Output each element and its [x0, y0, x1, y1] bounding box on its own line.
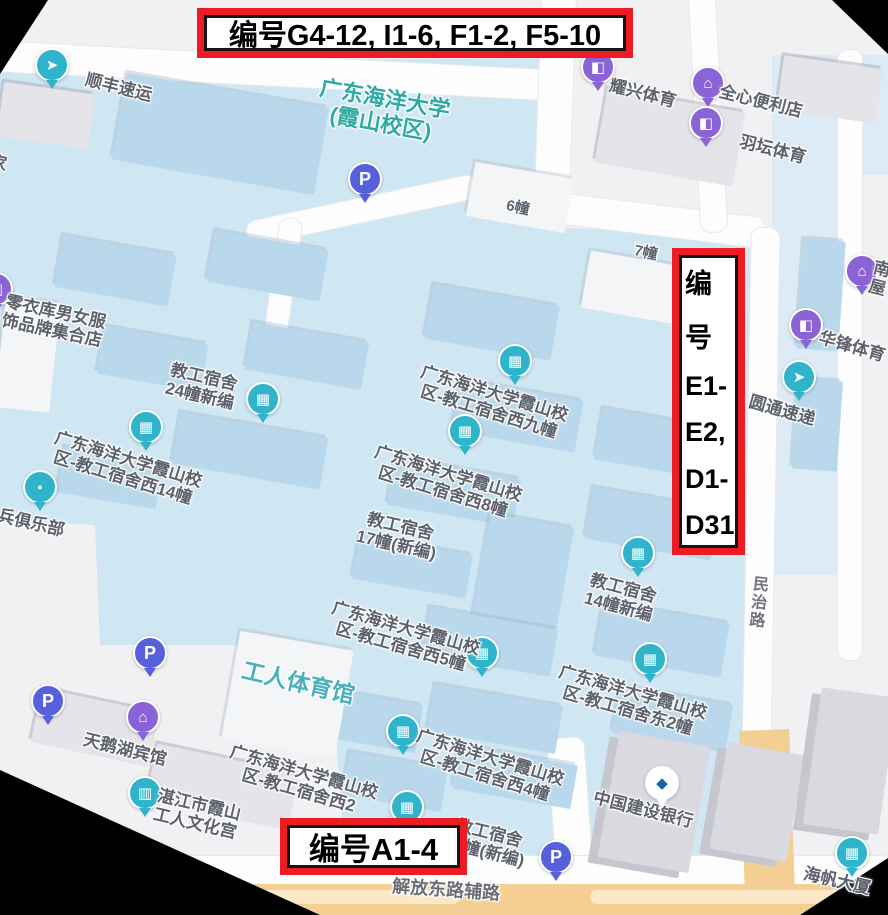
culture-glyph: ▥ [138, 784, 152, 802]
building-icon: ▦ [129, 410, 163, 444]
building-glyph: ▦ [631, 544, 645, 562]
annotation-right-text: 编号E1-E2,D1-D31 [679, 255, 738, 548]
label-building-6-line: 6幢 [505, 198, 531, 219]
label-dorm-17: 教工宿舍17幢(新编) [354, 508, 442, 563]
building-icon: ▦ [246, 382, 280, 416]
annotation-box-top: 编号G4-12, I1-6, F1-2, F5-10 [197, 8, 633, 58]
annotation-right-line: 号 [685, 316, 712, 355]
poi-dorm-24-building-pin[interactable]: ▦ [246, 382, 280, 423]
store-glyph: ⌂ [857, 263, 866, 280]
bag-icon: ◧ [789, 308, 823, 342]
label-minzhi-road-line: 路 [748, 612, 766, 631]
bank-glyph: ◆ [656, 774, 668, 792]
courier-icon: ➤ [35, 48, 69, 82]
parking-icon: P [31, 684, 65, 718]
pin-tail [144, 668, 156, 677]
bag-glyph: ◧ [699, 114, 713, 132]
label-minzhi-road: 民治路 [748, 576, 770, 631]
parking-glyph: P [144, 643, 156, 664]
pin-tail [793, 392, 805, 401]
building-glyph: ▦ [396, 722, 410, 740]
annotation-right-line: E2, [685, 417, 726, 448]
poi-dorm-west-9-building-pin[interactable]: ▦ [498, 344, 532, 385]
pin-tail [550, 872, 562, 881]
poi-dorm-east-2-building-pin[interactable]: ▦ [633, 642, 667, 683]
label-partial-left: 家 [0, 152, 9, 174]
pin-tail [46, 80, 58, 89]
poi-swan-lake-hotel-hotel-pin[interactable]: ⌂ [126, 700, 160, 741]
poi-dorm-west-14[interactable]: 广东海洋大学霞山校区-教工宿舍西14幢 [47, 428, 204, 509]
pin-tail [644, 674, 656, 683]
poi-huafeng-sports-line: 华锋体育 [817, 328, 888, 365]
courier-glyph: ➤ [793, 368, 806, 386]
building-icon: ▦ [621, 536, 655, 570]
poi-yutan-sports-bag-pin[interactable]: ◧ [689, 106, 723, 147]
poi-yaoxing-sports[interactable]: 耀兴体育 [607, 76, 678, 111]
pin-tail [700, 138, 712, 147]
pin-tail [139, 808, 151, 817]
parking-icon: P [348, 162, 382, 196]
poi-ccb-bank-line: 中国建设银行 [591, 788, 695, 831]
parking-pin-gym-parking-pin[interactable]: P [133, 636, 167, 677]
label-partial-left-line: 家 [0, 152, 9, 174]
poi-partial-right-line: 屋 [867, 276, 888, 299]
poi-dorm-east-2[interactable]: 广东海洋大学霞山校区-教工宿舍东2幢 [552, 662, 710, 741]
courier-glyph: ➤ [46, 56, 59, 74]
bag-glyph: ◧ [799, 316, 813, 334]
poi-dorm-west-8[interactable]: 广东海洋大学霞山校区-教工宿舍西8幢 [367, 442, 524, 523]
poi-sf-express-line: 顺丰速运 [83, 70, 154, 105]
pin-tail [459, 446, 471, 455]
pin-tail [632, 568, 644, 577]
building-icon: ▦ [633, 642, 667, 676]
building-icon: ▦ [498, 344, 532, 378]
pin-tail [359, 194, 371, 203]
poi-quanxin-store[interactable]: 全心便利店 [717, 82, 804, 121]
poi-yaoxing-sports-line: 耀兴体育 [607, 76, 678, 111]
poi-workers-gym-line: 工人体育馆 [239, 658, 357, 709]
pin-tail [592, 82, 604, 91]
pin-tail [137, 732, 149, 741]
building-glyph: ▦ [458, 422, 472, 440]
annotation-right-line: D1- [685, 464, 729, 495]
parking-glyph: P [550, 847, 562, 868]
parking-icon: P [539, 840, 573, 874]
campus-title[interactable]: 广东海洋大学(霞山校区) [313, 76, 452, 147]
building-glyph: ▦ [845, 844, 859, 862]
pin-tail [476, 668, 488, 677]
poi-dorm-14-new[interactable]: 教工宿舍14幢新编 [582, 570, 659, 625]
parking-pin-south-parking-pin[interactable]: P [539, 840, 573, 881]
hotel-glyph: ⌂ [138, 709, 147, 726]
parking-glyph: P [359, 169, 371, 190]
building-glyph: ▦ [139, 418, 153, 436]
building-glyph: ▦ [400, 798, 414, 816]
building-icon: ▦ [448, 414, 482, 448]
annotation-top-text: 编号G4-12, I1-6, F1-2, F5-10 [204, 15, 626, 51]
parking-pin-campus-parking-pin[interactable]: P [348, 162, 382, 203]
pin-tail [140, 442, 152, 451]
poi-yutan-sports-line: 羽坛体育 [737, 132, 808, 167]
poi-dorm-west-8-building-pin[interactable]: ▦ [448, 414, 482, 455]
poi-veterans-club-line: 兵俱乐部 [0, 506, 66, 540]
poi-quanxin-store-line: 全心便利店 [717, 82, 804, 121]
annotation-box-right: 编号E1-E2,D1-D31 [672, 248, 745, 555]
poi-sf-express[interactable]: 顺丰速运 [83, 70, 154, 105]
poi-yto-express-courier-pin[interactable]: ➤ [782, 360, 816, 401]
poi-dorm-west-14-building-pin[interactable]: ▦ [129, 410, 163, 451]
poi-workers-gym[interactable]: 工人体育馆 [239, 658, 357, 709]
label-building-7-line: 7幢 [633, 243, 659, 264]
pin-tail [34, 502, 46, 511]
poi-lingyiku-clothing[interactable]: 零衣库男女服饰品牌集合店 [0, 292, 108, 350]
poi-veterans-club-dot-pin[interactable]: ● [23, 470, 57, 511]
building-glyph: ▦ [643, 650, 657, 668]
annotation-right-line: E1- [685, 371, 727, 402]
parking-icon: P [133, 636, 167, 670]
annotation-box-bottom: 编号A1-4 [280, 818, 467, 875]
label-minzhi-road-line: 治 [750, 594, 768, 613]
courier-icon: ➤ [782, 360, 816, 394]
map-canvas[interactable]: ➤顺丰速运广东海洋大学(霞山校区)◧耀兴体育⌂全心便利店◧羽坛体育6幢7幢◧零衣… [0, 0, 888, 915]
pin-tail [397, 746, 409, 755]
label-building-6: 6幢 [505, 198, 531, 219]
poi-yutan-sports[interactable]: 羽坛体育 [737, 132, 808, 167]
annotation-right-line: D31 [685, 510, 735, 541]
bank-icon: ◆ [645, 766, 679, 800]
poi-dorm-west-9[interactable]: 广东海洋大学霞山校区-教工宿舍西九幢 [413, 362, 570, 443]
label-jiefang-east-aux-road: 解放东路辅路 [392, 876, 501, 904]
dot-icon: ● [23, 470, 57, 504]
hotel-icon: ⌂ [126, 700, 160, 734]
poi-dorm-west-2[interactable]: 广东海洋大学霞山校区-教工宿舍西2 [223, 742, 381, 821]
parking-glyph: P [42, 691, 54, 712]
bag-glyph: ◧ [0, 280, 3, 298]
poi-dorm-west-5[interactable]: 广东海洋大学霞山校区-教工宿舍西5幢 [325, 598, 483, 677]
pin-tail [0, 304, 2, 313]
dot-glyph: ● [37, 482, 42, 492]
label-minzhi-road-line: 民 [752, 576, 770, 595]
label-jiefang-east-aux-road-line: 解放东路辅路 [392, 876, 501, 904]
poi-haifan-building-building-pin[interactable]: ▦ [835, 836, 869, 877]
building-glyph: ▦ [508, 352, 522, 370]
annotation-bottom-text: 编号A1-4 [287, 825, 460, 868]
poi-culture-palace[interactable]: 湛江市霞山工人文化宫 [151, 786, 242, 842]
store-glyph: ⌂ [703, 75, 712, 92]
label-building-7: 7幢 [633, 243, 659, 264]
pin-tail [509, 376, 521, 385]
poi-dorm-24[interactable]: 教工宿舍24幢新编 [163, 360, 240, 413]
poi-sf-express-courier-pin[interactable]: ➤ [35, 48, 69, 89]
pin-tail [42, 716, 54, 725]
poi-layer: ➤顺丰速运广东海洋大学(霞山校区)◧耀兴体育⌂全心便利店◧羽坛体育6幢7幢◧零衣… [0, 0, 888, 915]
poi-dorm-14-new-building-pin[interactable]: ▦ [621, 536, 655, 577]
building-glyph: ▦ [256, 390, 270, 408]
poi-huafeng-sports[interactable]: 华锋体育 [817, 328, 888, 365]
parking-pin-hotel-parking-pin[interactable]: P [31, 684, 65, 725]
poi-ccb-bank[interactable]: 中国建设银行 [591, 788, 695, 831]
bag-glyph: ◧ [591, 58, 605, 76]
pin-tail [800, 340, 812, 349]
bag-icon: ◧ [689, 106, 723, 140]
annotation-right-line: 编 [685, 262, 712, 301]
poi-dorm-west-4[interactable]: 广东海洋大学霞山校区-教工宿舍西4幢 [409, 726, 566, 807]
poi-veterans-club[interactable]: 兵俱乐部 [0, 506, 66, 540]
building-icon: ▦ [835, 836, 869, 870]
pin-tail [257, 414, 269, 423]
